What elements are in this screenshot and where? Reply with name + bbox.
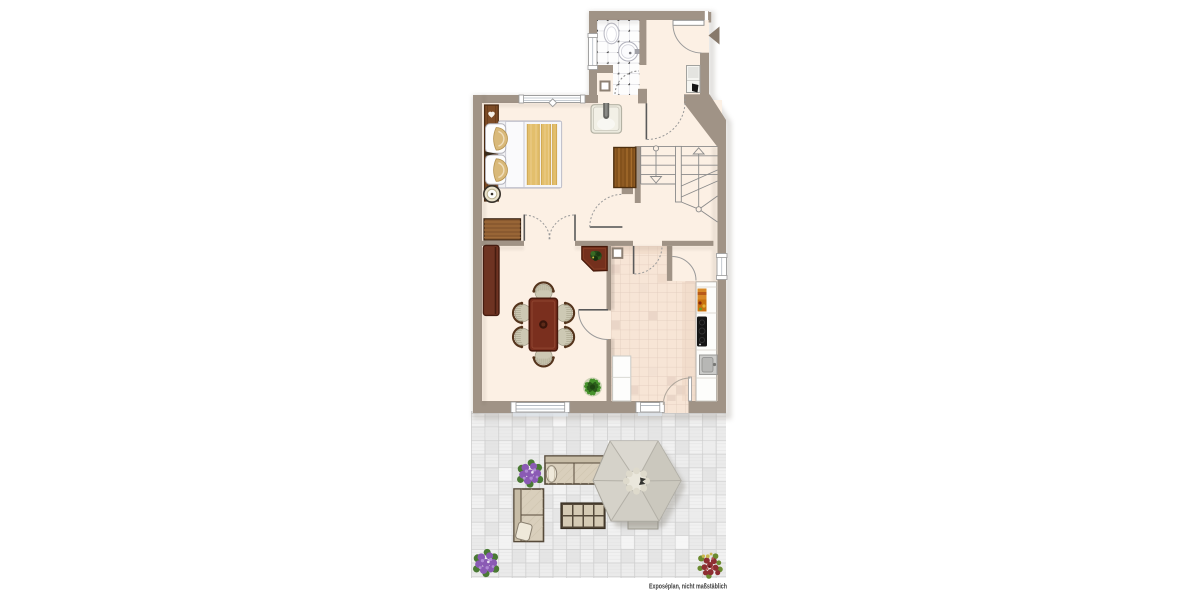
svg-text:Exposéplan, nicht maßstäblich: Exposéplan, nicht maßstäblich	[649, 582, 727, 591]
